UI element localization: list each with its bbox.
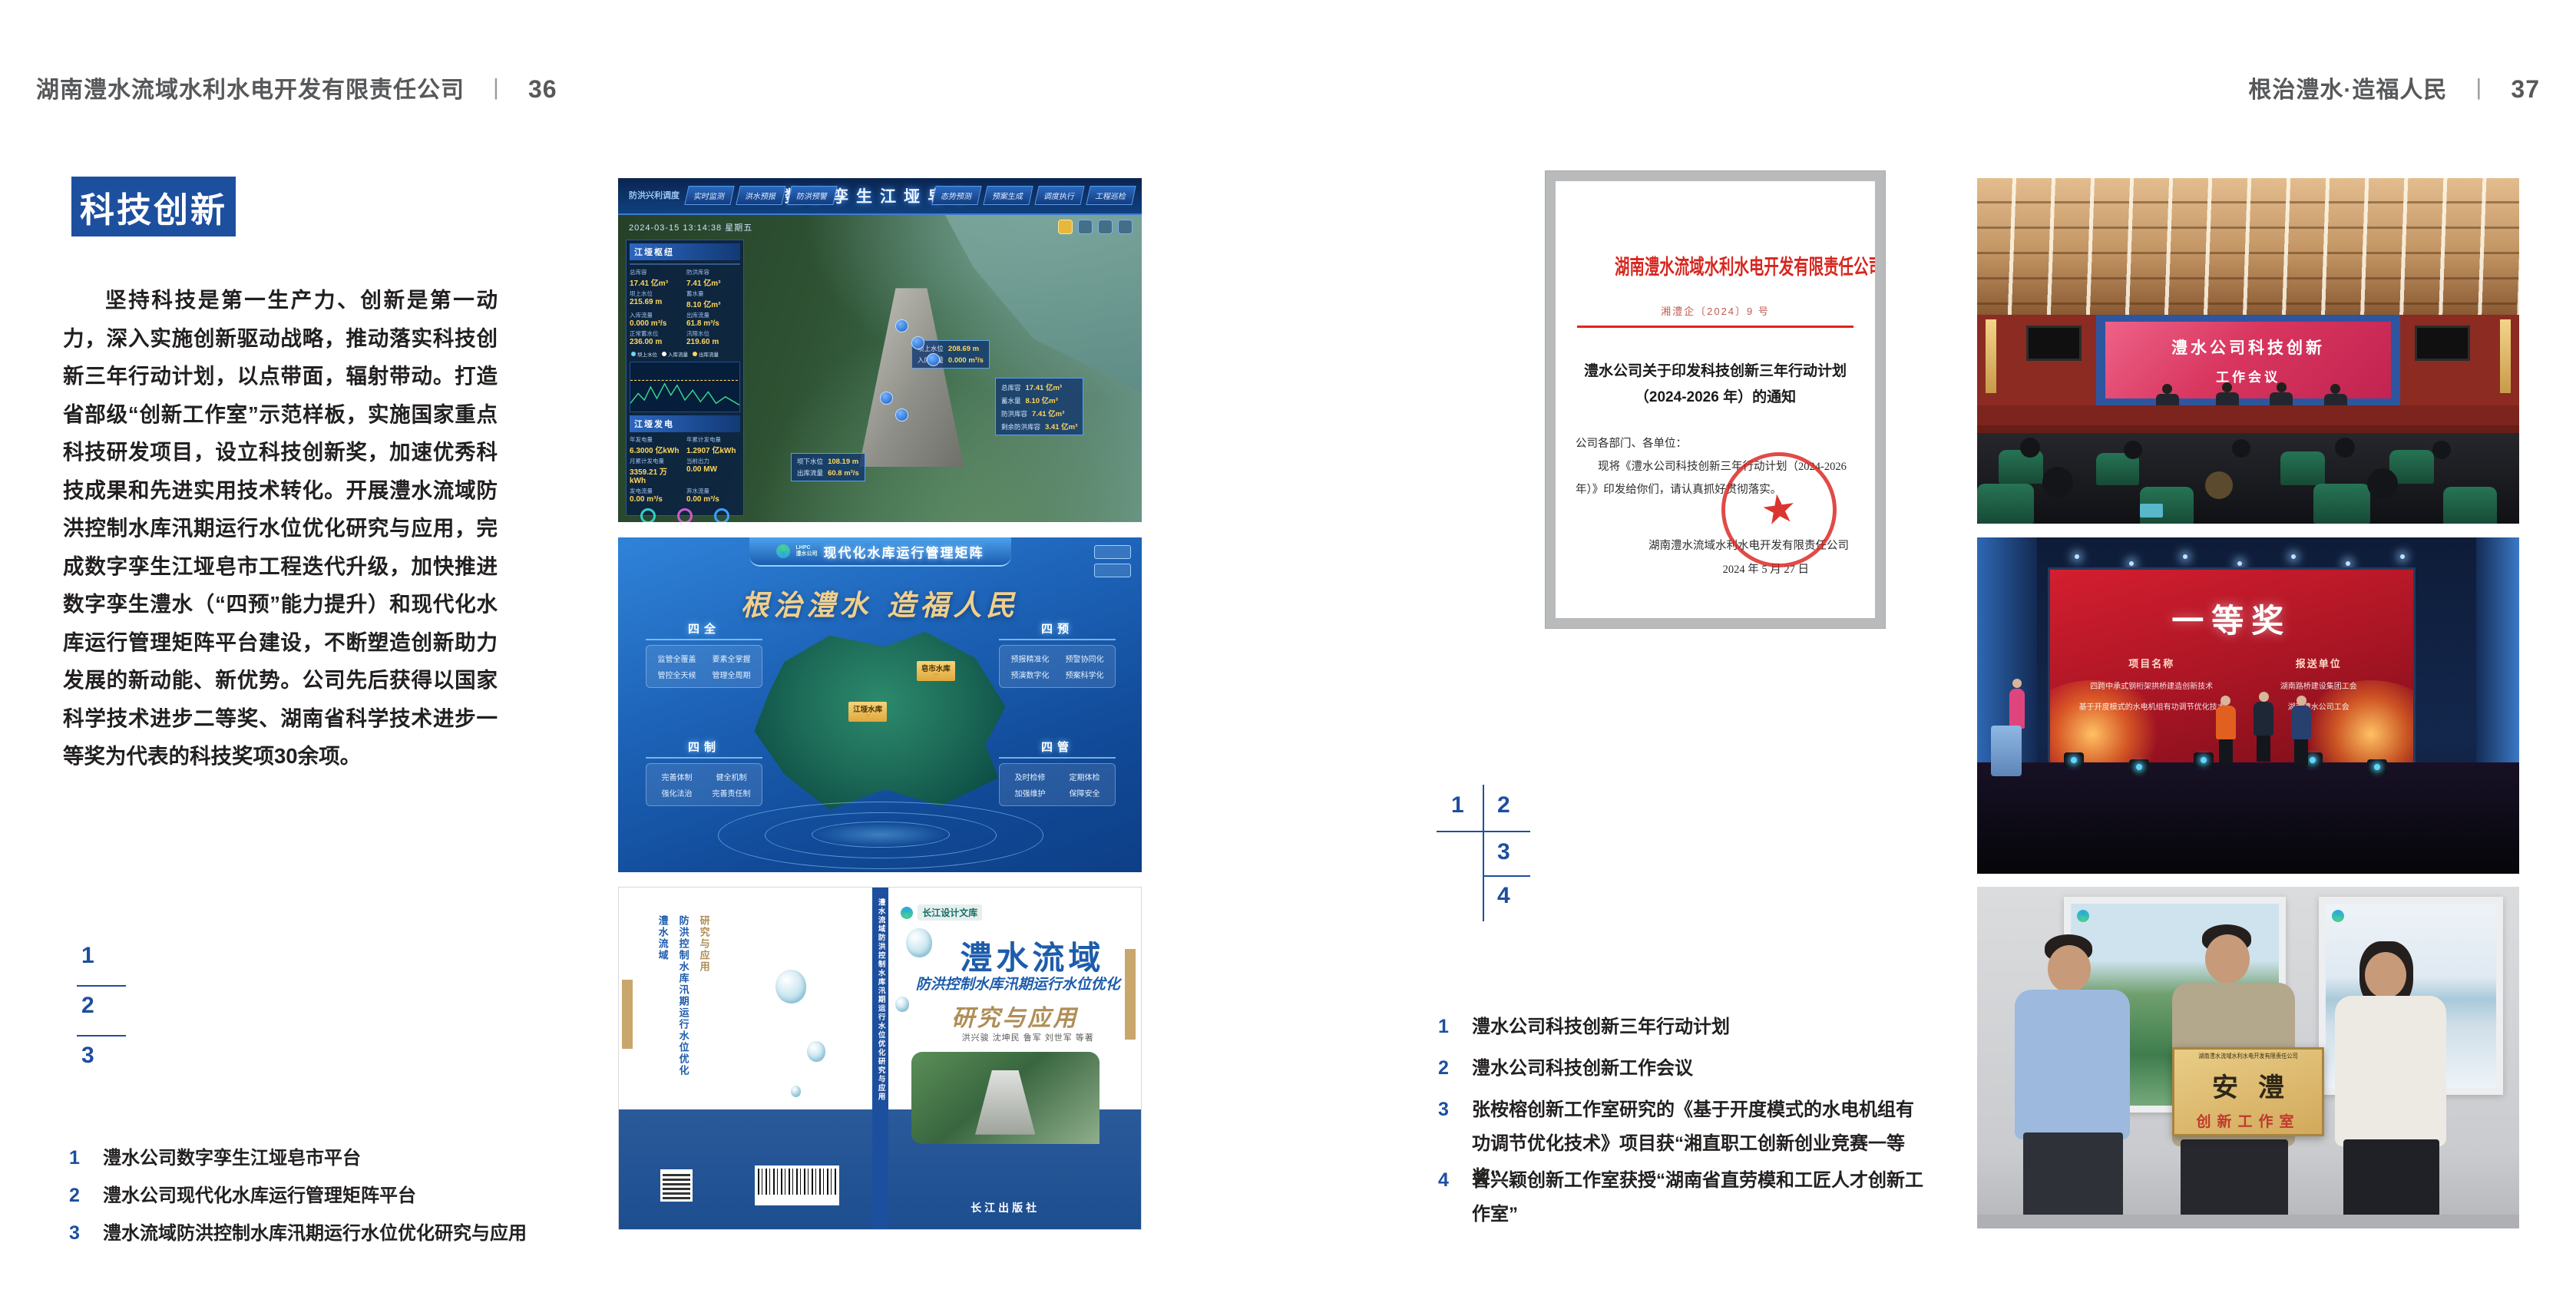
station-stats: 总库容17.41 亿m³ 防洪库容7.41 亿m³ 坝上水位215.69 m 蓄… — [630, 268, 740, 346]
chair-back — [2280, 451, 2325, 485]
tissue-box — [2140, 504, 2163, 517]
meeting-screen: 澧水公司科技创新 工作会议 — [2105, 322, 2390, 398]
water-droplet — [791, 1086, 801, 1097]
awardee-blue — [2291, 696, 2311, 765]
audience-head — [2205, 471, 2233, 499]
tooltip-row: 坝上水位208.69 m — [918, 344, 984, 353]
stat-cell: 出库流量61.8 m³/s — [686, 311, 740, 328]
stage-light-icon — [2237, 561, 2242, 566]
section-badge: 科技创新 — [71, 177, 236, 236]
module-title: 四全 — [646, 620, 762, 640]
document-number: 湘澧企〔2024〕9 号 — [1576, 303, 1855, 318]
figure-award-photo: 一等奖 项目名称 四跨中承式钢桁架拱桥建造创新技术 基于开度模式的水电机组有功调… — [1977, 537, 2519, 874]
figure-index-3: 3 — [81, 1043, 94, 1069]
audience-head — [2232, 439, 2250, 458]
tab-flood-warning: 防洪预警 — [787, 186, 837, 205]
stat-cell: 年累计发电量1.2907 亿kWh — [686, 435, 740, 455]
caption-row: 2 澧水公司现代化水库运行管理矩阵平台 — [69, 1179, 530, 1213]
stat-cell: 月累计发电量3359.21 万kWh — [630, 457, 683, 485]
stage-light-icon — [2400, 554, 2405, 559]
user-icon — [1058, 220, 1073, 234]
page-number-left: 36 — [528, 75, 557, 104]
map-label-jiangya: 江垭水库 — [848, 702, 887, 722]
power-stats: 年发电量6.3000 亿kWh 年累计发电量1.2907 亿kWh 月累计发电量… — [630, 435, 740, 504]
station-panel: 江垭枢纽 总库容17.41 亿m³ 防洪库容7.41 亿m³ 坝上水位215.6… — [626, 240, 744, 516]
tab-dispatch-execution: 调度执行 — [1034, 186, 1084, 205]
stat-cell: 汛限水位219.60 m — [686, 329, 740, 346]
figure-index-1: 1 — [1451, 792, 1464, 818]
figure-index-2: 2 — [81, 993, 94, 1019]
tooltip-row: 出库流量60.8 m³/s — [797, 468, 859, 478]
module-siquan: 四全 监管全覆盖 要素全掌握 管控全天候 管理全周期 — [646, 620, 762, 688]
moving-head-light-icon — [2129, 759, 2149, 775]
innovation-studio-plaque: 湖南澧水流域水利水电开发有限责任公司 安澧 创新工作室 — [2172, 1047, 2324, 1136]
book-title: 澧水流域 — [895, 932, 1104, 979]
caption-number: 3 — [69, 1222, 86, 1245]
platform-tabs-left: 防洪兴利调度 实时监测 洪水预报 防洪预警 — [627, 186, 835, 205]
screen-title-line1: 澧水公司科技创新 — [2171, 336, 2325, 359]
barcode — [755, 1165, 839, 1205]
settings-icon — [1118, 220, 1133, 234]
module-sizhi: 四制 完善体制 健全机制 强化法治 完善责任制 — [646, 739, 762, 806]
page-number-right: 37 — [2511, 75, 2540, 104]
figure-digital-twin-platform: 数字孪生江垭皂市 防洪兴利调度 实时监测 洪水预报 防洪预警 态势预测 预案生成… — [618, 178, 1142, 522]
salutation: 公司各部门、各单位： — [1576, 432, 1855, 455]
brand-text: LHPC澧水公司 — [796, 545, 818, 557]
document-page: 湖南澧水流域水利水电开发有限责任公司文件 湘澧企〔2024〕9 号 澧水公司关于… — [1556, 181, 1875, 618]
module-panel: 完善体制 健全机制 强化法治 完善责任制 — [646, 763, 762, 806]
water-droplet — [895, 997, 909, 1012]
figure-index-1: 1 — [81, 943, 94, 969]
index-divider — [77, 985, 126, 987]
audience-area — [1977, 433, 2519, 524]
map-label-zaoshi: 皂市水库 — [917, 661, 955, 681]
caption-text: 澧水公司科技创新三年行动计划 — [1472, 1010, 1730, 1044]
dam-structure — [859, 288, 964, 467]
panel-speaker — [2270, 382, 2293, 405]
book-subtitle: 防洪控制水库汛期运行水位优化 — [880, 973, 1120, 994]
ring-decoration — [812, 822, 949, 848]
wall-lamp — [1986, 319, 1996, 393]
stat-cell: 坝上水位215.69 m — [630, 289, 683, 309]
stat-cell: 总库容17.41 亿m³ — [630, 268, 683, 288]
plaque-org-line: 湖南澧水流域水利水电开发有限责任公司 — [2198, 1052, 2298, 1060]
back-cover-title: 澧水流域 防洪控制水库汛期运行水位优化 研究与应用 — [656, 915, 712, 1076]
unit-gauges — [630, 507, 740, 522]
gauge-icon — [677, 508, 693, 522]
legend-item: 坝上水位 — [631, 350, 657, 358]
caption-row: 4 曾兴颖创新工作室获授“湖南省直劳模和工匠人才创新工作室” — [1438, 1164, 1937, 1232]
water-droplet — [807, 1041, 825, 1062]
tv-monitor — [2415, 326, 2470, 361]
person-head — [2365, 952, 2406, 998]
stat-cell: 当前出力0.00 MW — [686, 457, 740, 485]
datetime-label: 2024-03-15 13:14:38 星期五 — [629, 221, 752, 233]
awardee-orange — [2216, 696, 2236, 765]
tab-flood-forecast: 洪水预报 — [736, 186, 785, 205]
matrix-title-bar: LHPC澧水公司 现代化水库运行管理矩阵 — [749, 537, 1011, 567]
module-title: 四预 — [999, 620, 1116, 640]
podium — [1991, 726, 2022, 776]
header-separator: 丨 — [484, 71, 508, 104]
caption-number: 1 — [69, 1147, 86, 1169]
tooltip-row: 总库容17.41 亿m³ — [1001, 382, 1077, 392]
stage-light-icon — [2129, 561, 2134, 566]
audience-head — [2367, 468, 2398, 499]
person-torso-blue-polo — [2015, 990, 2130, 1140]
audience-head — [2335, 438, 2355, 458]
module-label: 防洪兴利调度 — [627, 186, 681, 205]
index-divider — [1437, 831, 1530, 832]
audience-head — [2124, 441, 2142, 459]
stage-light-icon — [2291, 554, 2296, 559]
header-separator: 丨 — [2467, 71, 2491, 104]
fullscreen-button — [1094, 545, 1131, 559]
wall-lamp — [2500, 319, 2511, 393]
chair-back — [2443, 487, 2497, 524]
host-figure — [2009, 689, 2025, 729]
caption-number: 2 — [1438, 1057, 1455, 1080]
caption-text: 澧水流域防洪控制水库汛期运行水位优化研究与应用 — [103, 1217, 527, 1251]
stage-light-icon — [2075, 554, 2079, 559]
tooltip-row: 剩余防洪库容3.41 亿m³ — [1001, 421, 1077, 431]
host-head — [2012, 679, 2022, 688]
caption-text: 曾兴颖创新工作室获授“湖南省直劳模和工匠人才创新工作室” — [1472, 1164, 1937, 1232]
stat-cell: 弃水流量0.00 m³/s — [686, 487, 740, 504]
tab-project-inspection: 工程巡检 — [1086, 186, 1136, 205]
locate-icon — [1098, 220, 1113, 234]
dam-photo — [911, 1052, 1100, 1144]
toolbar-icons — [1058, 220, 1133, 234]
panel-title: 江垭发电 — [630, 415, 740, 432]
award-title: 一等奖 — [2050, 595, 2413, 642]
floor-strip — [1977, 1215, 2519, 1228]
panel-speaker — [2216, 382, 2239, 405]
capacity-tooltip: 总库容17.41 亿m³ 蓄水量8.10 亿m³ 防洪库容7.41 亿m³ 剩余… — [995, 378, 1083, 435]
index-divider — [77, 1035, 126, 1037]
audience-head — [2042, 467, 2073, 498]
chair-back — [2313, 484, 2370, 524]
caption-number: 1 — [1438, 1016, 1455, 1038]
project-name-column: 项目名称 四跨中承式钢桁架拱桥建造创新技术 基于开度模式的水电机组有功调节优化技… — [2079, 656, 2224, 712]
spine-title: 澧水流域防洪控制水库汛期运行水位优化研究与应用 — [875, 898, 886, 1102]
tv-monitor — [2026, 326, 2082, 361]
water-droplet — [775, 970, 806, 1003]
dam-shape — [975, 1070, 1035, 1135]
presenter-suit — [2254, 692, 2273, 762]
figure-plaque-photo: 湖南澧水流域水利水电开发有限责任公司 安澧 创新工作室 — [1977, 887, 2519, 1228]
series-brand: 长江设计文库 — [901, 904, 982, 921]
lhpc-logo-icon — [2332, 910, 2344, 922]
water-level-chart — [630, 362, 740, 412]
tab-realtime-monitor: 实时监测 — [684, 186, 734, 205]
red-rule — [1577, 326, 1853, 328]
plaque-title: 安澧 — [2192, 1066, 2304, 1104]
tooltip-row: 防洪库容7.41 亿m³ — [1001, 408, 1077, 418]
module-panel: 监管全覆盖 要素全掌握 管控全天候 管理全周期 — [646, 645, 762, 688]
unit-marker-icon — [880, 392, 893, 405]
body-paragraph: 坚持科技是第一生产力、创新是第一动力，深入实施创新驱动战略，推动落实科技创新三年… — [63, 281, 498, 775]
moving-head-light-icon — [2064, 752, 2084, 768]
projection-wall: 澧水公司科技创新 工作会议 — [2096, 315, 2399, 405]
caption-number: 3 — [1438, 1099, 1455, 1121]
figure-index-3: 3 — [1497, 839, 1510, 865]
caption-row: 1 澧水公司科技创新三年行动计划 — [1438, 1010, 1937, 1044]
caption-row: 1 澧水公司数字孪生江垭皂市平台 — [69, 1142, 530, 1175]
meeting-ceiling — [1977, 178, 2519, 315]
tab-plan-generation: 预案生成 — [983, 186, 1033, 205]
tan-accent-bar — [622, 980, 633, 1049]
moving-head-light-icon — [2367, 759, 2387, 775]
page-right-header: 根治澧水·造福人民 丨 37 — [2248, 71, 2540, 104]
module-panel: 预报精准化 预警协同化 预演数字化 预案科学化 — [999, 645, 1116, 688]
caption-number: 4 — [1438, 1169, 1455, 1192]
document-title: 澧水公司关于印发科技创新三年行动计划 （2024-2026 年）的通知 — [1576, 359, 1855, 411]
qr-code — [660, 1169, 693, 1202]
platform-tabs-right: 态势预测 预案生成 调度执行 工程巡检 — [934, 186, 1134, 205]
stat-cell: 蓄水量8.10 亿m³ — [686, 289, 740, 309]
changjiang-design-logo-icon — [901, 907, 913, 919]
panel-speaker — [2156, 384, 2179, 407]
figure-matrix-platform: LHPC澧水公司 现代化水库运行管理矩阵 根治澧水 造福人民 皂市水库 江垭水库… — [618, 537, 1142, 872]
caption-number: 2 — [69, 1185, 86, 1207]
basin-map — [754, 628, 1005, 815]
caption-row: 2 澧水公司科技创新工作会议 — [1438, 1052, 1937, 1086]
menu-button — [1094, 564, 1131, 577]
tan-accent-bar — [1125, 949, 1136, 1040]
gauge-icon — [714, 508, 729, 522]
stat-cell: 正常蓄水位236.00 m — [630, 329, 683, 346]
figure-book-cover: 澧水流域 防洪控制水库汛期运行水位优化 研究与应用 澧水流域防洪控制水库汛期运行… — [618, 887, 1142, 1230]
rostrum-skirt — [1977, 425, 2519, 433]
downstream-tooltip: 坝下水位108.19 m 出库流量60.8 m³/s — [791, 453, 865, 481]
figure-official-document: 湖南澧水流域水利水电开发有限责任公司文件 湘澧企〔2024〕9 号 澧水公司关于… — [1546, 171, 1885, 628]
company-name: 湖南澧水流域水利水电开发有限责任公司 — [36, 71, 465, 104]
module-siyu: 四预 预报精准化 预警协同化 预演数字化 预案科学化 — [999, 620, 1116, 688]
stage-light-icon — [2346, 561, 2350, 566]
tooltip-row: 蓄水量8.10 亿m³ — [1001, 395, 1077, 405]
caption-row: 3 澧水流域防洪控制水库汛期运行水位优化研究与应用 — [69, 1217, 530, 1251]
legend-item: 入库流量 — [662, 350, 688, 358]
panel-speaker — [2324, 384, 2347, 407]
stage-floor — [1977, 762, 2519, 874]
person-head — [2048, 945, 2091, 993]
document-red-header: 湖南澧水流域水利水电开发有限责任公司文件 — [1615, 250, 1816, 280]
caption-text: 澧水公司数字孪生江垭皂市平台 — [103, 1142, 361, 1175]
module-panel: 及时检修 定期体检 加强维护 保障安全 — [999, 763, 1116, 806]
legend-item: 出库流量 — [693, 350, 719, 358]
chart-legend: 坝上水位 入库流量 出库流量 — [630, 349, 740, 359]
matrix-slogan: 根治澧水 造福人民 — [618, 582, 1142, 623]
page-left-header: 湖南澧水流域水利水电开发有限责任公司 丨 36 — [36, 71, 557, 104]
caption-text: 澧水公司科技创新工作会议 — [1472, 1052, 1693, 1086]
matrix-title: 现代化水库运行管理矩阵 — [824, 542, 984, 561]
module-title: 四制 — [646, 739, 762, 759]
stat-cell: 入库流量0.000 m³/s — [630, 311, 683, 328]
book-subtitle2: 研究与应用 — [951, 999, 1078, 1033]
audience-head — [2432, 441, 2451, 459]
module-siguan: 四管 及时检修 定期体检 加强维护 保障安全 — [999, 739, 1116, 806]
publisher-name: 长江出版社 — [911, 1200, 1100, 1215]
unit-marker-icon — [911, 336, 924, 349]
figure-index-2: 2 — [1497, 792, 1510, 818]
figure-index-4: 4 — [1497, 883, 1510, 909]
caption-text: 澧水公司现代化水库运行管理矩阵平台 — [103, 1179, 416, 1213]
layers-icon — [1078, 220, 1093, 234]
person-head — [2205, 934, 2250, 984]
chair-back — [1977, 484, 2034, 524]
lhpc-logo-icon — [776, 544, 790, 558]
book-spine: 澧水流域防洪控制水库汛期运行水位优化研究与应用 — [872, 888, 888, 1229]
person-torso-white — [2335, 996, 2446, 1146]
module-title: 四管 — [999, 739, 1116, 759]
figure-meeting-photo: 澧水公司科技创新 工作会议 — [1977, 178, 2519, 524]
rostrum-table — [1977, 405, 2519, 425]
lhpc-logo-icon — [2077, 910, 2089, 922]
document-date: 2024 年 5 月 27 日 — [1576, 560, 1855, 577]
tab-situation-forecast: 态势预测 — [931, 186, 981, 205]
book-authors: 洪兴骏 沈坤民 鲁军 刘世军 等著 — [962, 1031, 1094, 1043]
stat-cell: 年发电量6.3000 亿kWh — [630, 435, 683, 455]
series-name: 长江设计文库 — [918, 904, 982, 921]
plaque-subtitle: 创新工作室 — [2196, 1110, 2300, 1131]
index-divider — [1483, 785, 1484, 921]
moving-head-light-icon — [2194, 752, 2214, 768]
slogan-text: 根治澧水·造福人民 — [2248, 71, 2447, 104]
panel-title: 江垭枢纽 — [630, 243, 740, 260]
tooltip-row: 坝下水位108.19 m — [797, 457, 859, 466]
stat-cell: 防洪库容7.41 亿m³ — [686, 268, 740, 288]
stage-light-icon — [2183, 554, 2187, 559]
stat-cell: 发电流量0.00 m³/s — [630, 487, 683, 504]
gauge-icon — [640, 508, 656, 522]
index-divider — [1483, 875, 1530, 877]
dam-thumbnail — [630, 263, 740, 265]
